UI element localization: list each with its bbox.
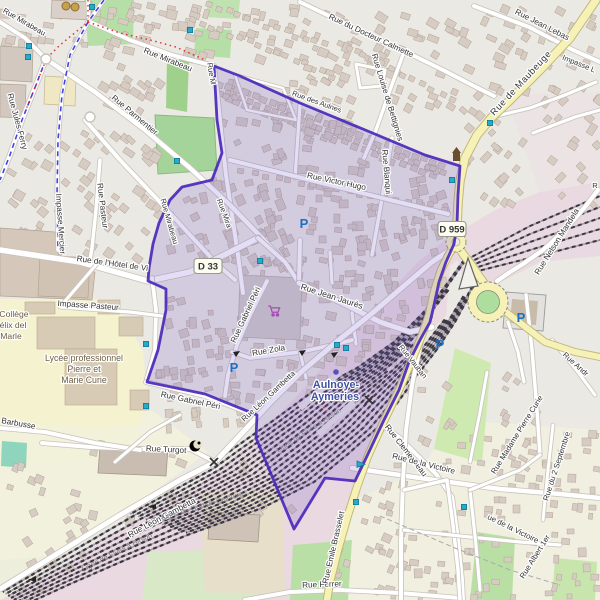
svg-text:P: P: [300, 216, 309, 231]
svg-text:R: R: [592, 181, 598, 190]
svg-text:Collège: Collège: [0, 309, 29, 319]
svg-text:élix del: élix del: [0, 320, 26, 330]
svg-text:Marie Curie: Marie Curie: [61, 375, 107, 385]
svg-text:Pierre et: Pierre et: [67, 364, 101, 374]
svg-text:P: P: [230, 360, 239, 375]
svg-text:D 959: D 959: [439, 225, 464, 236]
svg-text:P: P: [517, 310, 526, 325]
svg-text:Marle: Marle: [0, 331, 22, 341]
svg-text:D 33: D 33: [198, 262, 218, 273]
svg-text:Aulnoye-: Aulnoye-: [313, 379, 360, 391]
svg-text:Lycée professionnel: Lycée professionnel: [45, 353, 123, 363]
svg-text:Aymeries: Aymeries: [311, 391, 359, 403]
svg-text:P: P: [436, 337, 445, 352]
